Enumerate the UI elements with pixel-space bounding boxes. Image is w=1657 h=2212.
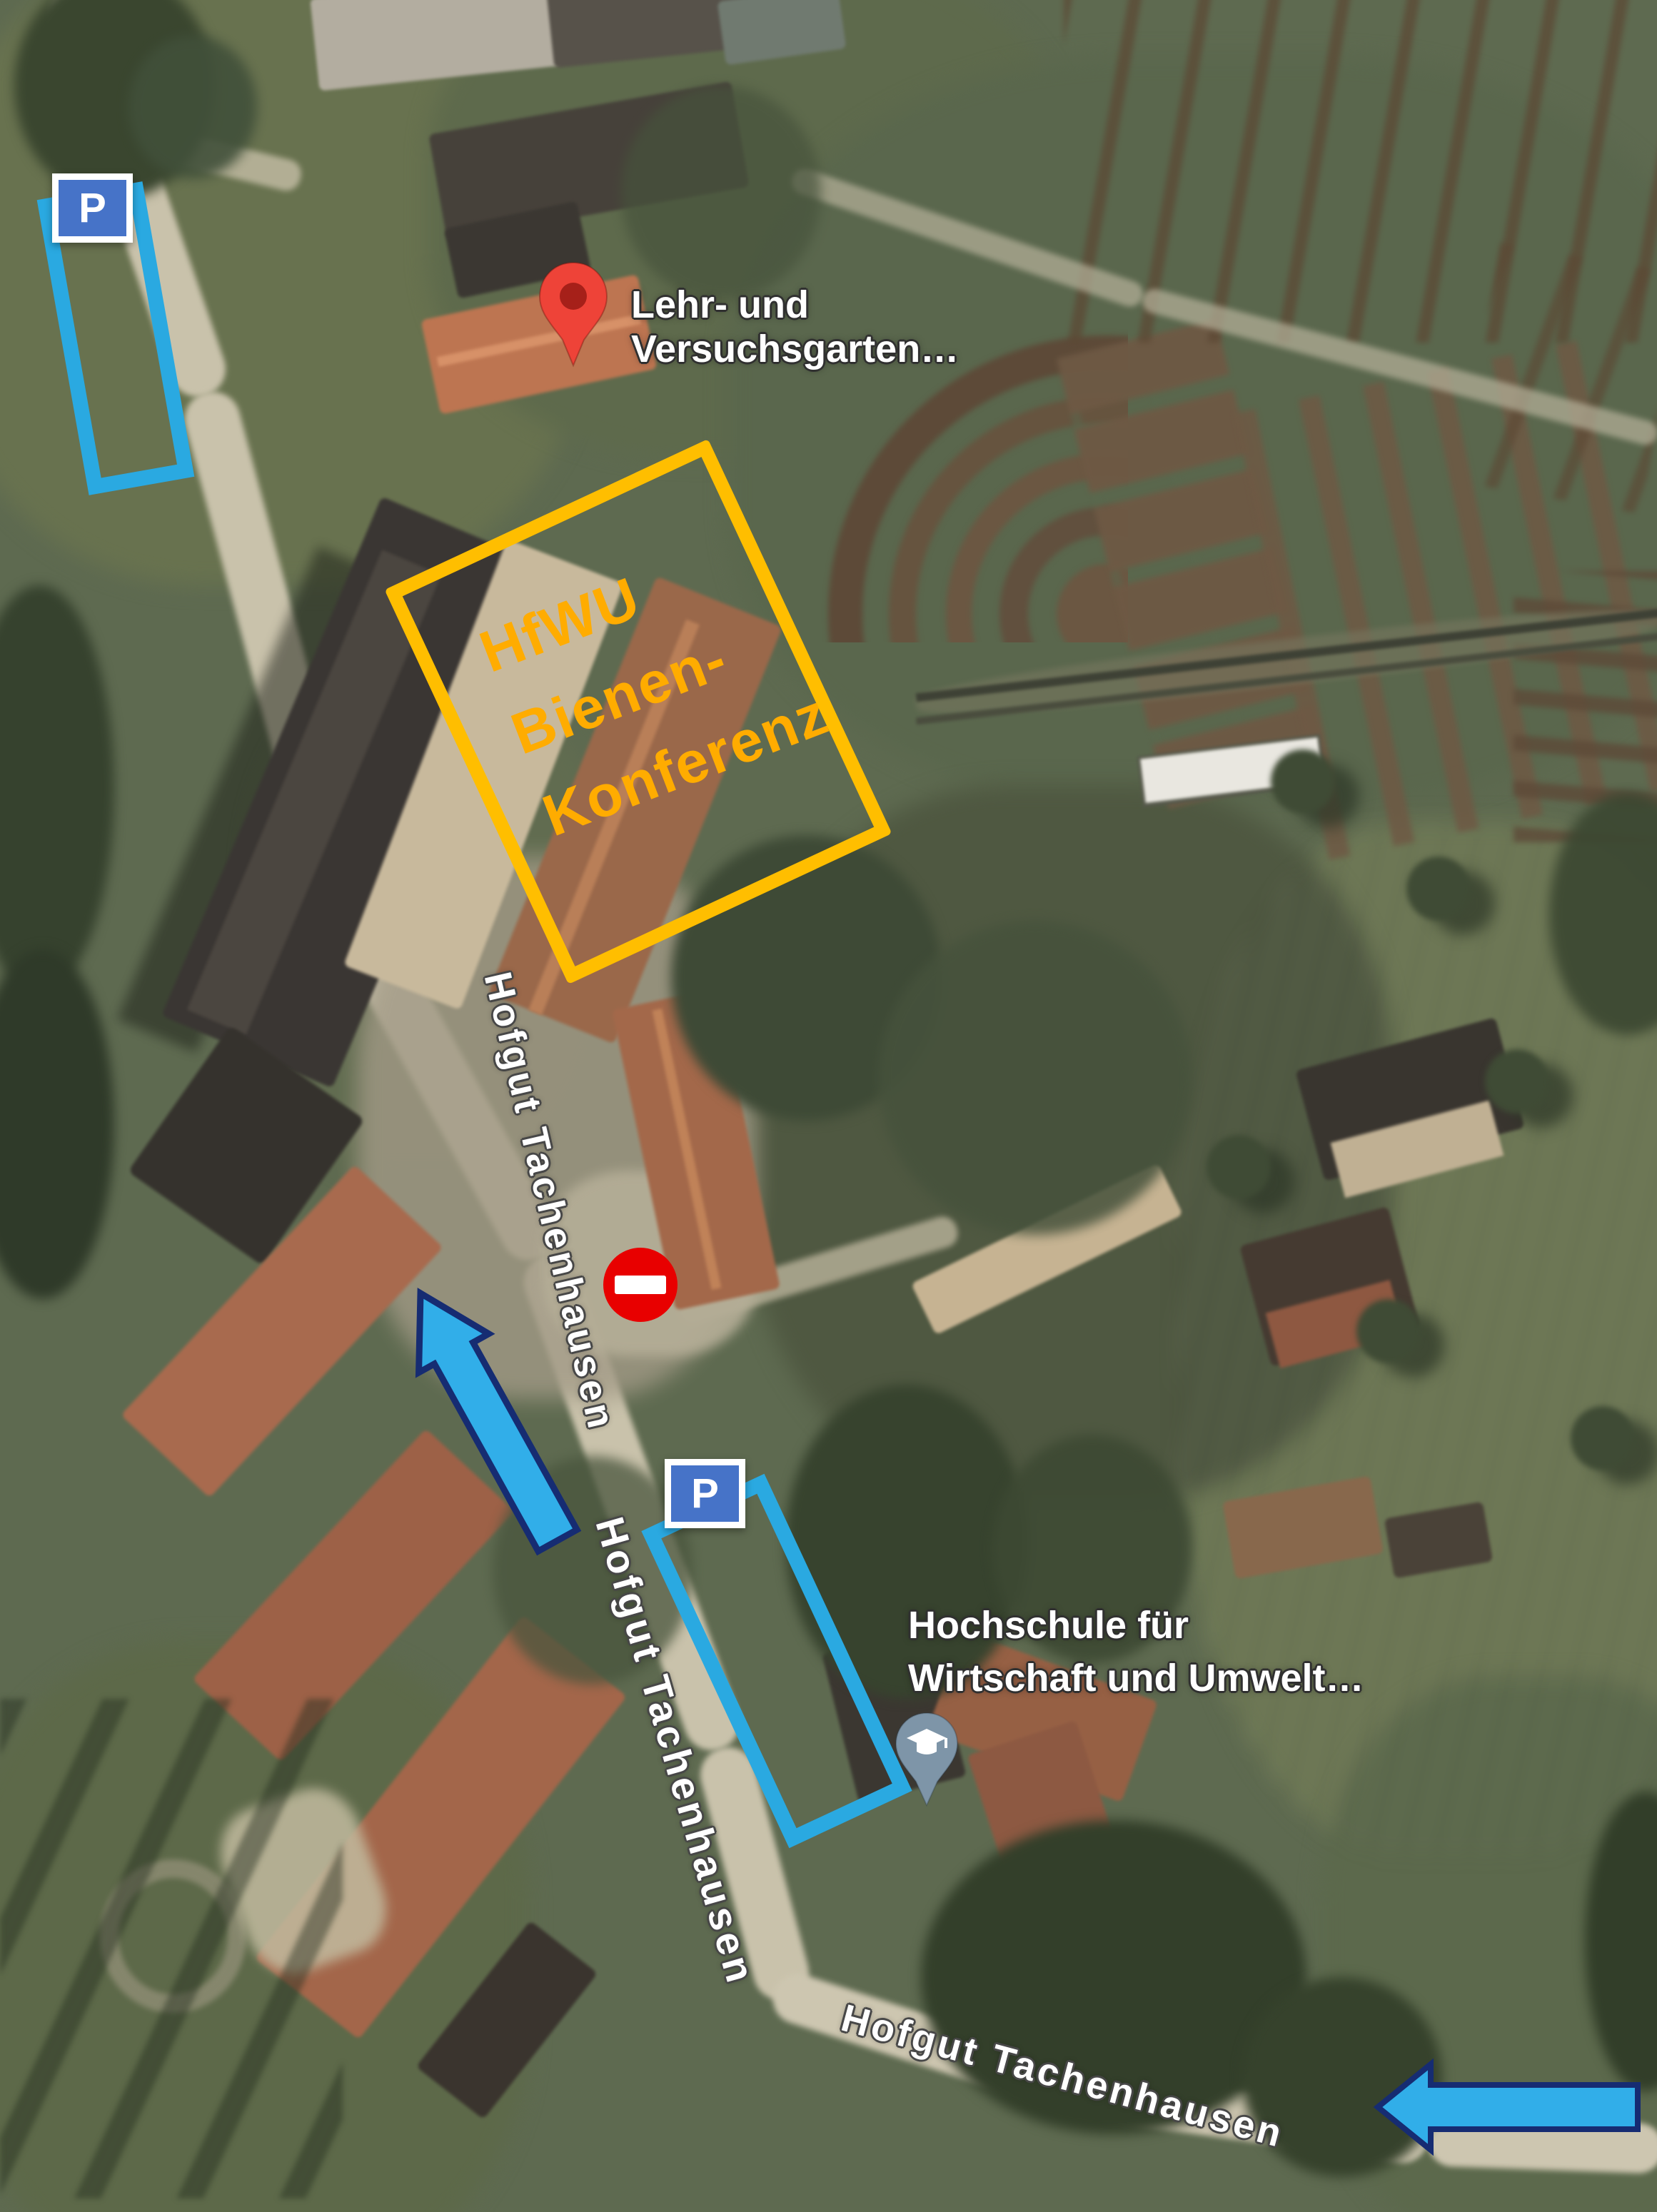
route-arrow-left-icon (1372, 2059, 1642, 2156)
parking-sign-letter: P (79, 184, 106, 232)
tree-cluster (0, 949, 114, 1299)
parking-sign: P (52, 173, 133, 243)
no-entry-icon (603, 1248, 678, 1322)
parking-sign: P (665, 1459, 745, 1528)
tree (1271, 749, 1335, 814)
tree (1571, 1406, 1635, 1470)
tree (1356, 1299, 1421, 1363)
tree-shadow-streaks (0, 1699, 343, 2198)
poi-label-line[interactable]: Hochschule für (908, 1599, 1189, 1652)
tree-cluster (621, 86, 821, 300)
tree-cluster (129, 36, 257, 178)
poi-label-line[interactable]: Versuchsgarten… (631, 323, 959, 375)
red-map-pin-icon[interactable] (535, 258, 611, 373)
tree (1485, 1049, 1549, 1113)
tree-cluster (878, 921, 1192, 1235)
parking-sign-letter: P (691, 1470, 719, 1517)
poi-label-line[interactable]: Wirtschaft und Umwelt… (908, 1652, 1364, 1705)
tree-cluster (0, 585, 114, 992)
tree (1207, 1135, 1271, 1199)
satellite-map-canvas[interactable]: Hofgut Tachenhausen Hofgut Tachenhausen … (0, 0, 1657, 2212)
tree (1406, 857, 1471, 921)
